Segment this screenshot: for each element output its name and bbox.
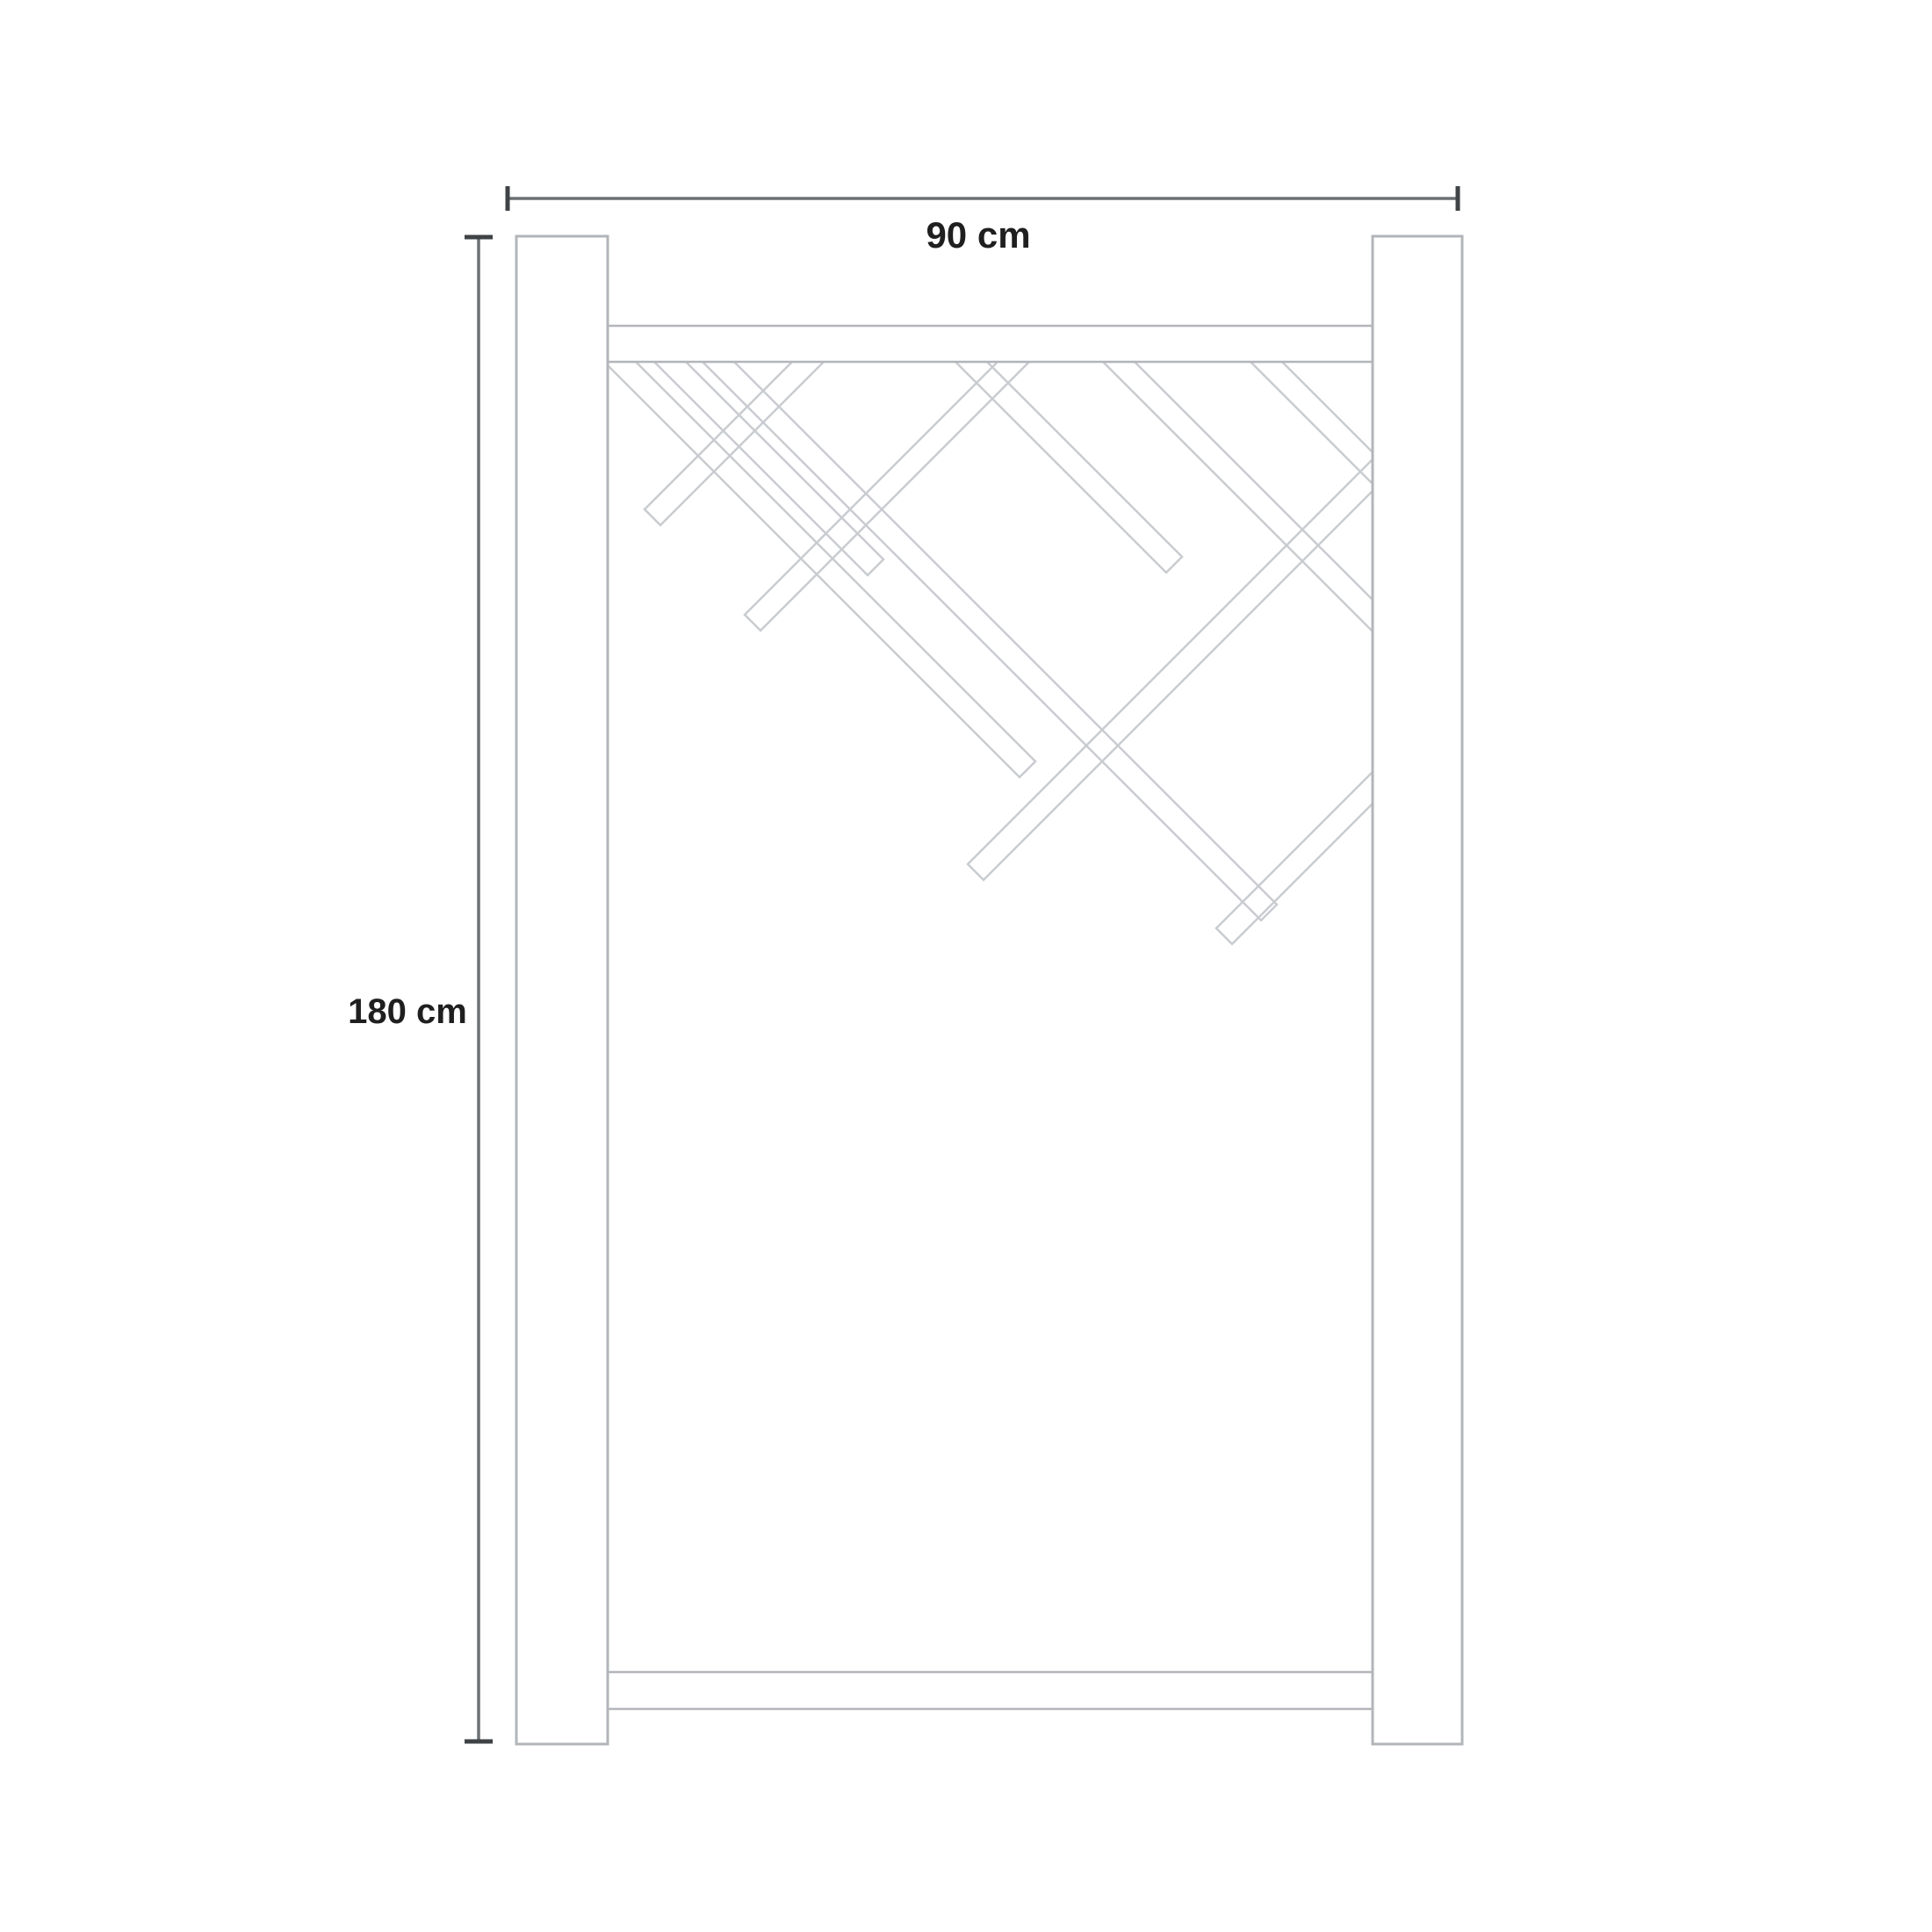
top-rail bbox=[608, 326, 1373, 362]
lattice-slat bbox=[1216, 362, 1814, 944]
trellis-lattice bbox=[604, 362, 1814, 944]
height-dimension-label: 180 cm bbox=[348, 994, 467, 1029]
width-dimension-label: 90 cm bbox=[926, 217, 1030, 254]
gate-line-drawing bbox=[0, 0, 1932, 1932]
left-post bbox=[516, 236, 608, 1744]
dimension-diagram: 90 cm 180 cm bbox=[0, 0, 1932, 1932]
right-post bbox=[1373, 236, 1462, 1744]
lattice-slat bbox=[645, 362, 824, 525]
bottom-rail bbox=[608, 1672, 1373, 1709]
lattice-slat bbox=[604, 362, 1035, 777]
lattice-slat bbox=[955, 362, 1182, 573]
